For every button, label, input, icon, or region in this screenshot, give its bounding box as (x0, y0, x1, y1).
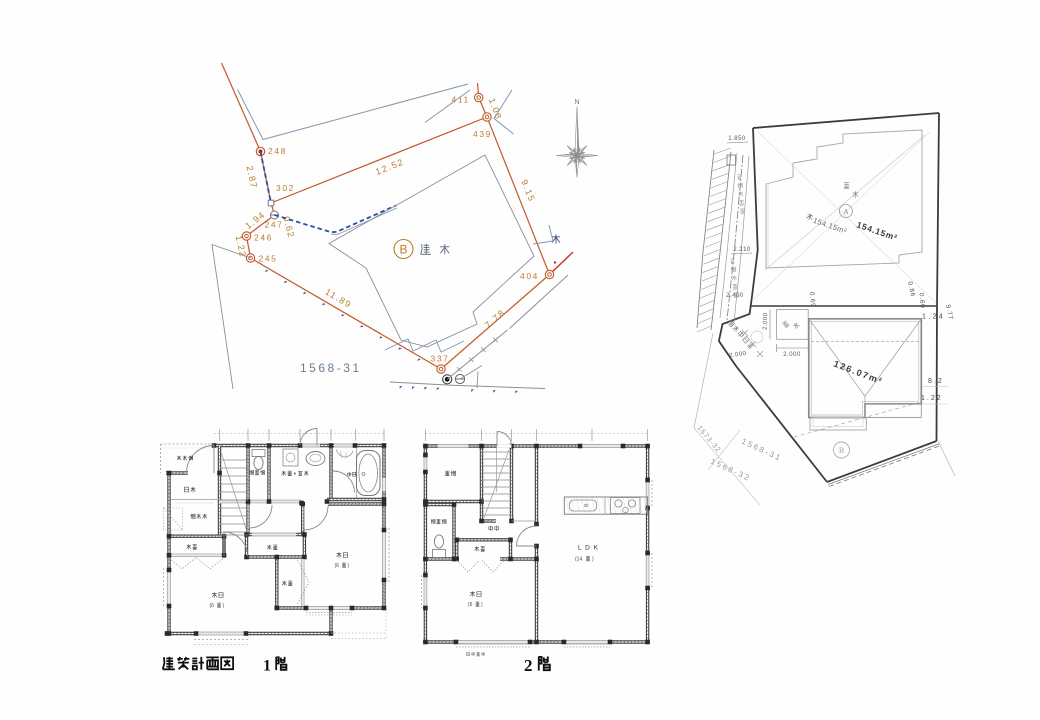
svg-text:2: 2 (524, 656, 533, 675)
svg-text:248: 248 (268, 146, 287, 156)
svg-text:245: 245 (259, 254, 278, 264)
svg-text:404: 404 (520, 271, 539, 281)
svg-text:247: 247 (265, 220, 284, 230)
svg-text:B: B (399, 243, 407, 257)
svg-text:0.60: 0.60 (918, 293, 926, 309)
svg-text:1.22: 1.22 (921, 395, 943, 402)
svg-text:1568-31: 1568-31 (300, 361, 362, 375)
svg-text:L D K: L D K (578, 545, 599, 552)
svg-text:2.210: 2.210 (733, 247, 751, 253)
svg-text:337: 337 (431, 354, 450, 364)
svg-text:(6: (6 (210, 603, 215, 609)
svg-text:B: B (839, 446, 844, 455)
svg-text:246: 246 (254, 233, 273, 243)
svg-text:N: N (574, 99, 579, 106)
svg-text:A: A (843, 207, 849, 216)
svg-text:1.24: 1.24 (922, 314, 945, 321)
svg-text:1.850: 1.850 (728, 136, 746, 142)
svg-text:439: 439 (473, 129, 492, 139)
svg-text:1: 1 (263, 658, 271, 675)
svg-text:(14: (14 (575, 557, 582, 563)
svg-text:0.69: 0.69 (808, 292, 816, 308)
svg-text:302: 302 (276, 183, 295, 193)
svg-text:8.2: 8.2 (928, 378, 944, 385)
svg-text:2.000: 2.000 (783, 352, 801, 358)
svg-text:411: 411 (452, 95, 470, 105)
svg-text:2.000: 2.000 (763, 312, 770, 330)
svg-text:(6: (6 (335, 563, 340, 569)
svg-text:(6: (6 (468, 602, 473, 608)
